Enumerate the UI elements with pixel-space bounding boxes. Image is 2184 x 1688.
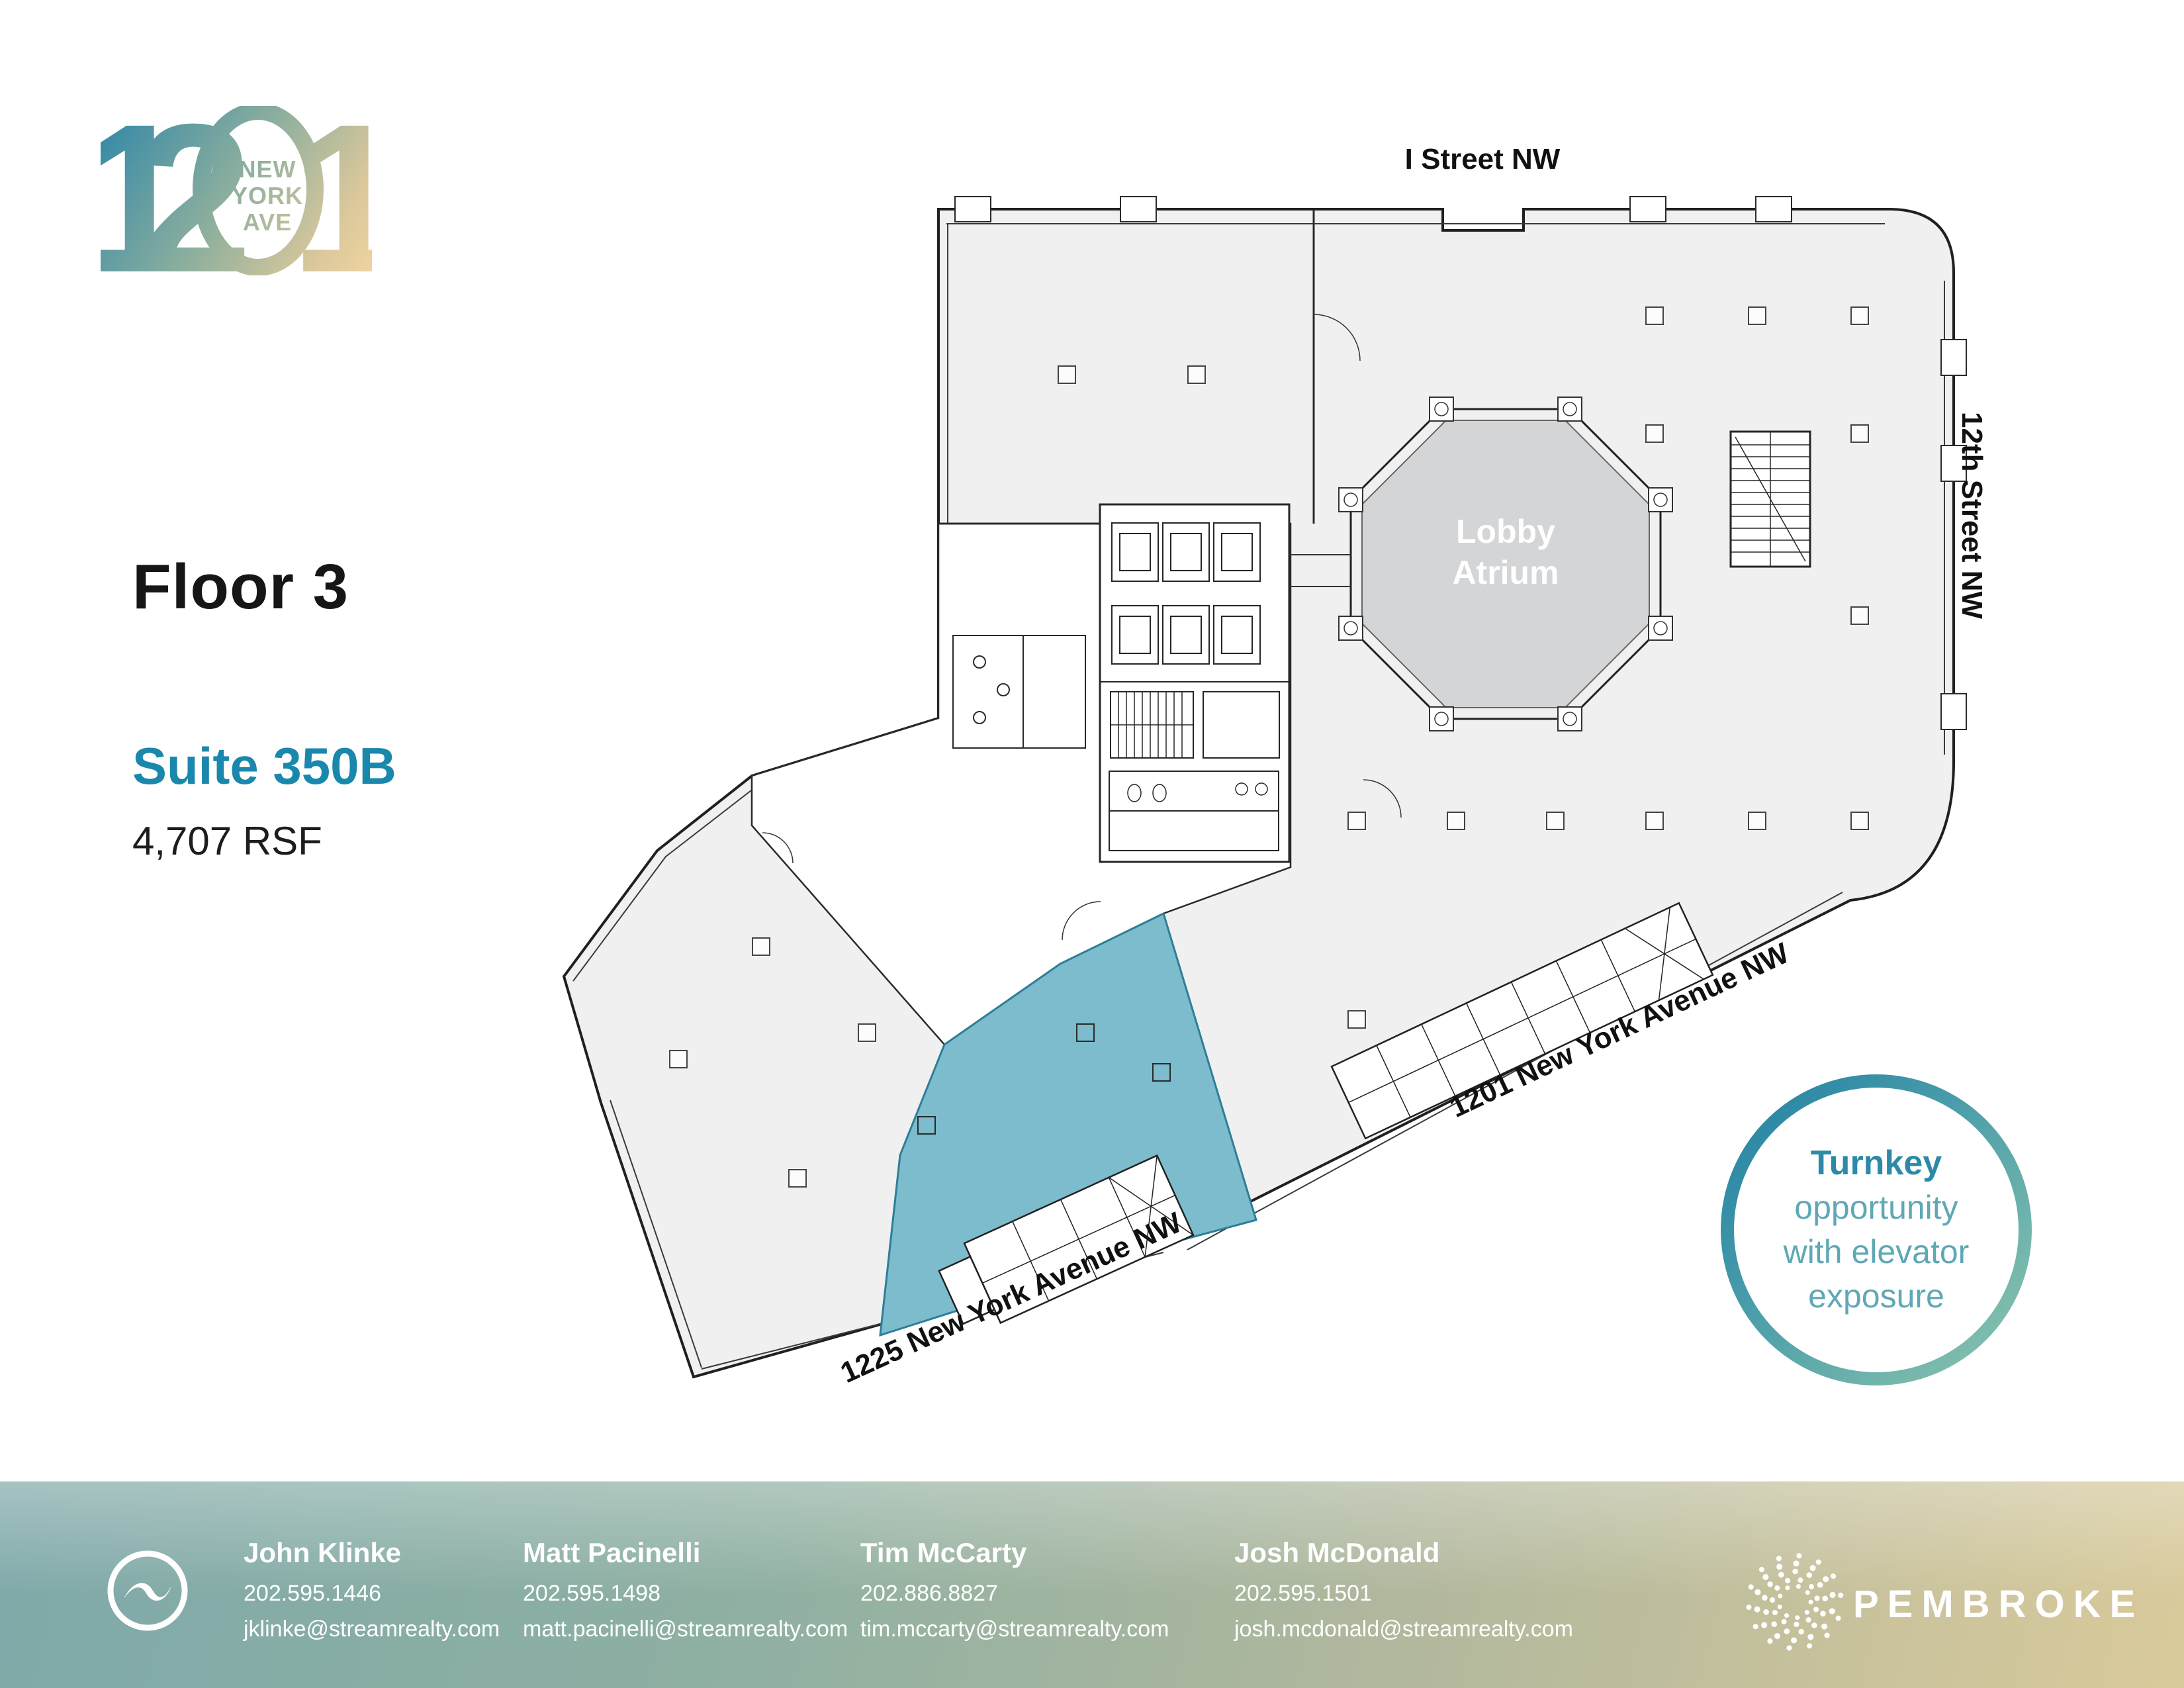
lobby-atrium-label: Lobby Atrium	[1393, 511, 1618, 593]
contact-email-4: josh.mcdonald@streamrealty.com	[1234, 1617, 1573, 1642]
flyer-page: 1 2 1 NEW YORK AVE Floor 3 Suite 350B 4,…	[0, 0, 2184, 1688]
badge-line1: Turnkey	[1734, 1141, 2019, 1186]
contact-name-3: Tim McCarty	[860, 1537, 1026, 1569]
contact-phone-2: 202.595.1498	[523, 1581, 660, 1607]
elevator-core	[1100, 504, 1289, 862]
contact-email-3: tim.mccarty@streamrealty.com	[860, 1617, 1169, 1642]
floor-plan	[0, 0, 2184, 1688]
contact-name-2: Matt Pacinelli	[523, 1537, 700, 1569]
stream-realty-logo	[101, 1544, 194, 1637]
street-label-i-street: I Street NW	[1357, 143, 1608, 176]
street-label-12th-street: 12th Street NW	[1955, 412, 1988, 637]
contact-name-4: Josh McDonald	[1234, 1537, 1439, 1569]
contact-phone-3: 202.886.8827	[860, 1581, 998, 1607]
turnkey-badge: Turnkey opportunity with elevator exposu…	[1721, 1074, 2032, 1385]
badge-line2: opportunity	[1734, 1186, 2019, 1230]
contact-phone-4: 202.595.1501	[1234, 1581, 1372, 1607]
stream-logo-wave	[124, 1583, 171, 1601]
contact-email-1: jklinke@streamrealty.com	[244, 1617, 500, 1642]
contact-name-1: John Klinke	[244, 1537, 401, 1569]
pembroke-logo-mark	[1739, 1546, 1851, 1658]
badge-line4: exposure	[1734, 1274, 2019, 1319]
badge-line3: with elevator	[1734, 1230, 2019, 1274]
stair-northeast	[1731, 432, 1810, 567]
lobby-atrium-line1: Lobby	[1393, 511, 1618, 552]
contact-phone-1: 202.595.1446	[244, 1581, 381, 1607]
pembroke-wordmark: PEMBROKE	[1853, 1582, 2144, 1626]
turnkey-badge-inner: Turnkey opportunity with elevator exposu…	[1734, 1088, 2019, 1372]
contact-email-2: matt.pacinelli@streamrealty.com	[523, 1617, 848, 1642]
lobby-atrium-line2: Atrium	[1393, 552, 1618, 593]
